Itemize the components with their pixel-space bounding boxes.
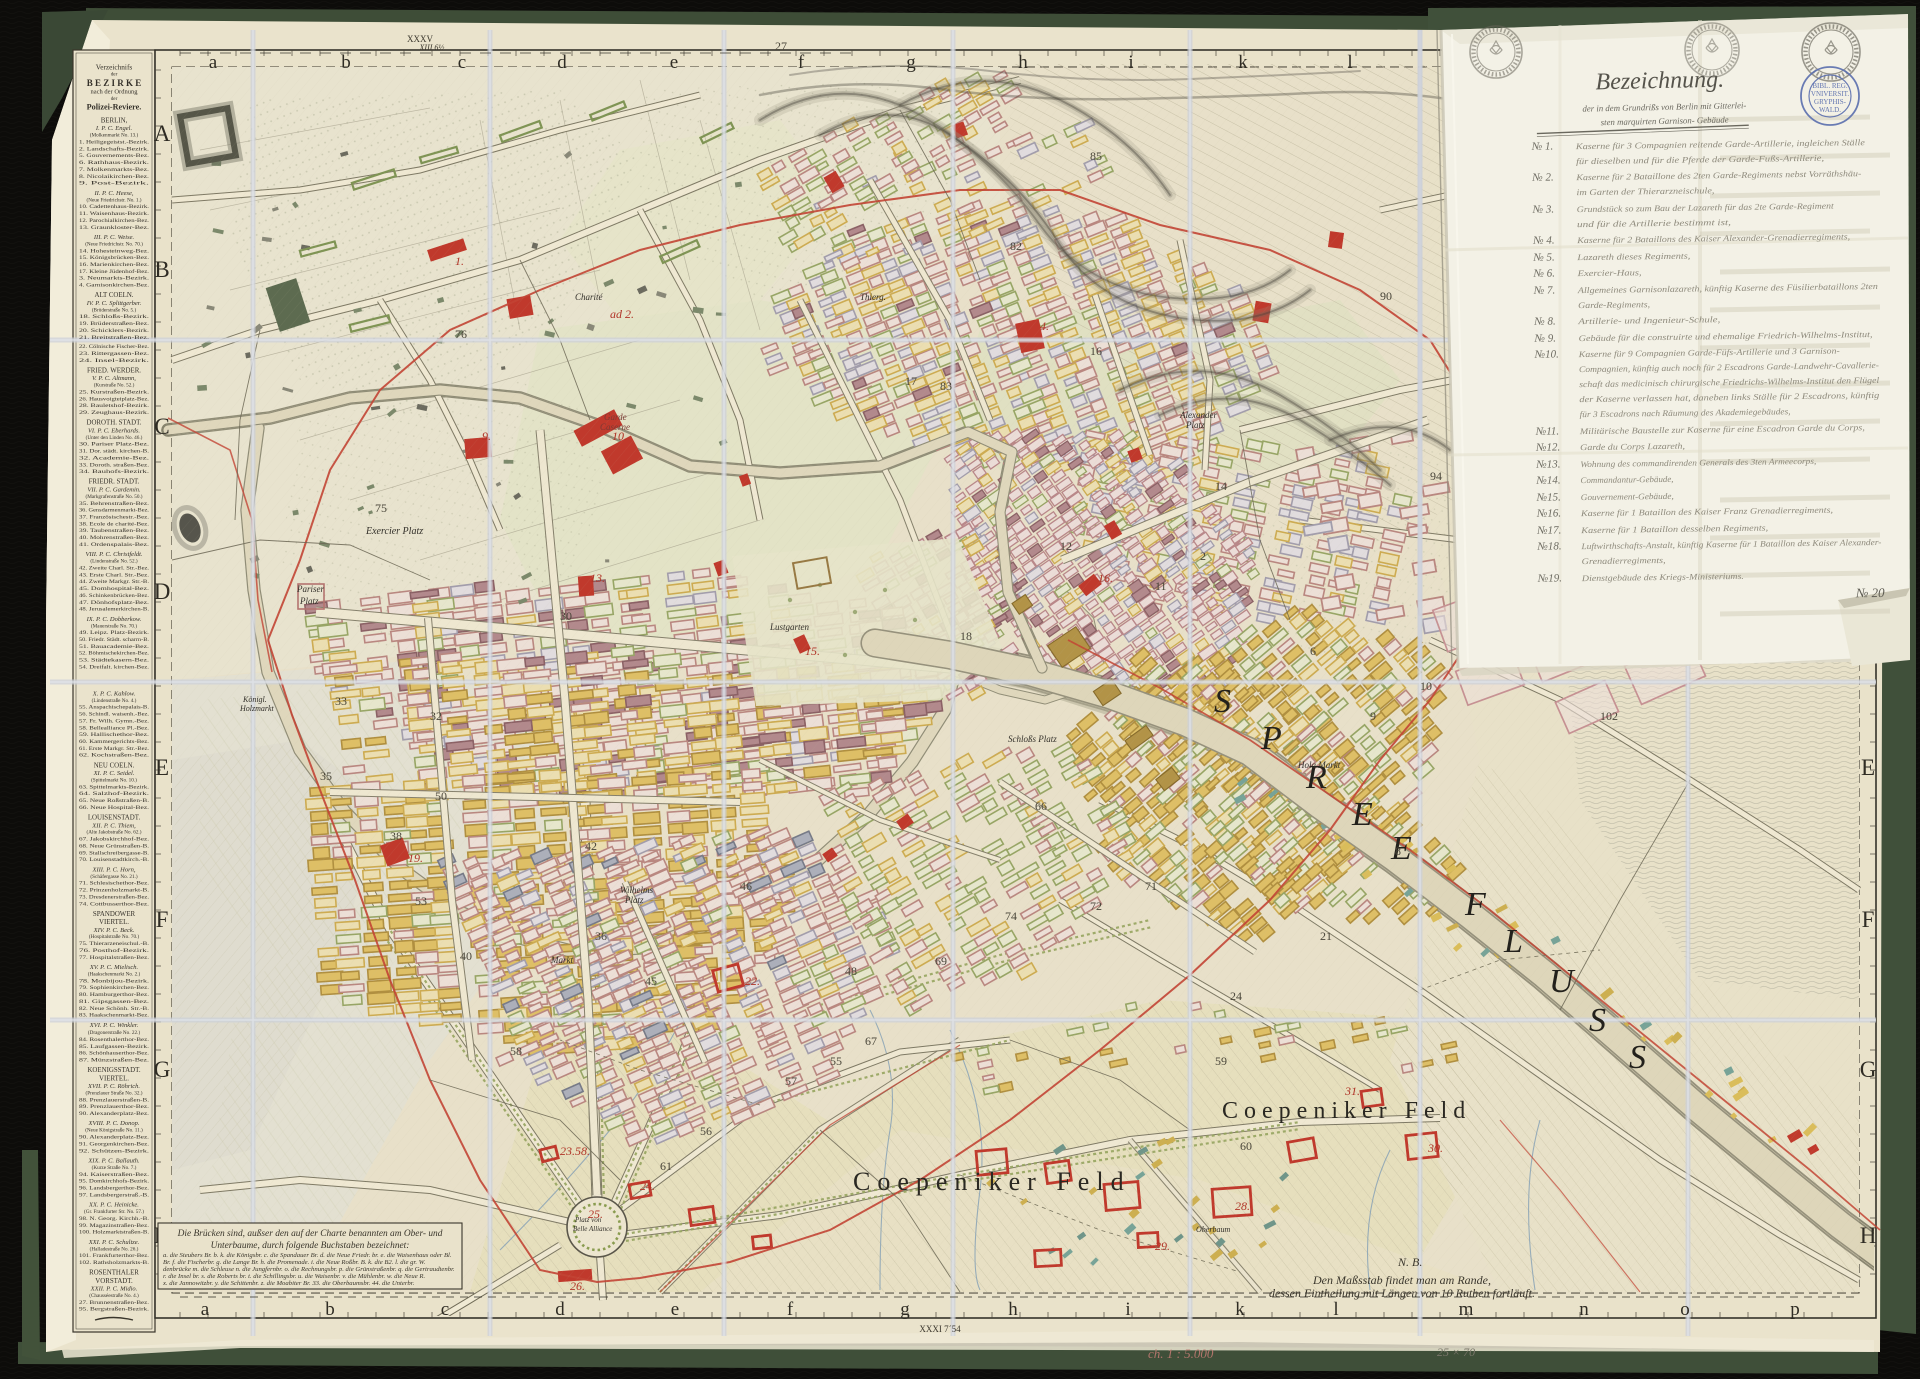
svg-text:90: 90	[1380, 289, 1392, 303]
svg-text:(Neue Friedrichstr. No. 70.): (Neue Friedrichstr. No. 70.)	[85, 240, 143, 247]
svg-text:36. Gensdarmenmarkt-Bez.: 36. Gensdarmenmarkt-Bez.	[79, 508, 150, 514]
svg-text:der: der	[111, 96, 118, 102]
svg-text:p: p	[1790, 1299, 1800, 1320]
svg-text:(Schäfergasse No. 21.): (Schäfergasse No. 21.)	[90, 873, 137, 880]
svg-text:a: a	[209, 52, 218, 73]
svg-text:(Markgrafenstraße No. 50.): (Markgrafenstraße No. 50.)	[85, 493, 142, 500]
svg-text:90. Alexanderplatz-Bez.: 90. Alexanderplatz-Bez.	[79, 1111, 150, 1117]
svg-text:81. Gipsgassen-Bez.: 81. Gipsgassen-Bez.	[79, 999, 150, 1005]
svg-text:60. Kammergerichts-Bez.: 60. Kammergerichts-Bez.	[79, 739, 150, 745]
svg-text:(Neue Königstraße No. 11.): (Neue Königstraße No. 11.)	[85, 1127, 143, 1134]
svg-text:16.: 16.	[1098, 571, 1113, 585]
svg-text:BERLIN,: BERLIN,	[101, 118, 128, 125]
svg-text:99. Magazinstraßen-Bez.: 99. Magazinstraßen-Bez.	[79, 1222, 150, 1229]
svg-text:84. Rosenthalerthor-Bez.: 84. Rosenthalerthor-Bez.	[79, 1037, 150, 1043]
svg-text:№14.: №14.	[1535, 474, 1560, 486]
svg-text:III. P. C. Weise.: III. P. C. Weise.	[93, 234, 135, 241]
svg-text:Platz: Platz	[1185, 420, 1205, 430]
svg-text:25 × 70: 25 × 70	[1437, 1345, 1475, 1359]
svg-text:85. Laufgassen-Bezirk.: 85. Laufgassen-Bezirk.	[79, 1043, 150, 1050]
svg-text:102. Rathsholzmarkts-B.: 102. Rathsholzmarkts-B.	[79, 1260, 150, 1266]
svg-text:XIII 6½: XIII 6½	[419, 43, 445, 52]
svg-text:(Kurze Straße No. 7.): (Kurze Straße No. 7.)	[92, 1164, 137, 1171]
svg-text:G: G	[154, 1057, 171, 1082]
svg-text:68. Neue Grünstraßen-B.: 68. Neue Grünstraßen-B.	[79, 843, 150, 850]
svg-text:(Unter den Linden No. 46.): (Unter den Linden No. 46.)	[86, 434, 143, 441]
svg-text:11. Waisenhaus-Bezirk.: 11. Waisenhaus-Bezirk.	[79, 211, 150, 217]
svg-text:21: 21	[1320, 929, 1332, 943]
svg-text:64. Salzhof-Bezirk.: 64. Salzhof-Bezirk.	[79, 790, 150, 797]
svg-text:Lustgarten: Lustgarten	[769, 622, 810, 632]
svg-text:IX. P. C. Dobberkow.: IX. P. C. Dobberkow.	[86, 616, 142, 623]
svg-text:2. Landschafts-Bezirk.: 2. Landschafts-Bezirk.	[79, 145, 150, 152]
svg-text:9.: 9.	[482, 429, 491, 443]
svg-text:№ 4.: № 4.	[1532, 234, 1555, 246]
svg-text:XXXI 7´54: XXXI 7´54	[919, 1324, 961, 1334]
svg-text:70. Louisenstadtkirch.-B.: 70. Louisenstadtkirch.-B.	[79, 857, 150, 863]
svg-text:55: 55	[830, 1054, 842, 1068]
svg-text:56: 56	[700, 1124, 712, 1138]
svg-text:(Neue Friedrichstr. No. 1.): (Neue Friedrichstr. No. 1.)	[86, 196, 141, 203]
svg-text:WALD.: WALD.	[1819, 106, 1841, 114]
svg-text:32: 32	[430, 709, 442, 723]
svg-text:№10.: №10.	[1534, 348, 1559, 360]
svg-text:XIV. P. C. Beck.: XIV. P. C. Beck.	[93, 927, 135, 934]
svg-text:35: 35	[320, 769, 332, 783]
svg-text:XIX. P. C. Ballauth.: XIX. P. C. Ballauth.	[87, 1158, 140, 1165]
svg-text:55. Anspachischepalais-B.: 55. Anspachischepalais-B.	[79, 705, 150, 711]
svg-text:№16.: №16.	[1536, 507, 1561, 519]
svg-text:10. Cadettenhaus-Bezirk.: 10. Cadettenhaus-Bezirk.	[79, 204, 150, 210]
svg-text:№ 8.: № 8.	[1533, 315, 1556, 327]
svg-text:c: c	[441, 1299, 449, 1320]
svg-text:№19.: №19.	[1537, 572, 1562, 584]
svg-text:Verzeichnifs: Verzeichnifs	[96, 62, 133, 71]
svg-text:45. Domhospital-Bez.: 45. Domhospital-Bez.	[79, 586, 150, 592]
svg-text:Grenadierregiments,: Grenadierregiments,	[1582, 555, 1666, 566]
svg-text:d: d	[555, 1299, 565, 1320]
svg-text:i: i	[1128, 52, 1133, 73]
svg-text:67. Jakobskirchhof-Bez.: 67. Jakobskirchhof-Bez.	[79, 836, 150, 843]
svg-text:43. Erste Charl. Str.-Bez.: 43. Erste Charl. Str.-Bez.	[79, 572, 150, 578]
svg-text:18: 18	[960, 629, 972, 643]
svg-text:Unterbaume, durch folgende Buc: Unterbaume, durch folgende Buchstaben be…	[211, 1240, 410, 1251]
svg-text:91. Georgenkirchen-Bez.: 91. Georgenkirchen-Bez.	[79, 1141, 150, 1147]
svg-text:Thierg.: Thierg.	[860, 292, 886, 302]
svg-text:6: 6	[1310, 644, 1316, 658]
svg-text:21. Breitstraßen-Bez.: 21. Breitstraßen-Bez.	[79, 334, 150, 341]
svg-text:36: 36	[595, 929, 607, 943]
svg-text:14. Hohesteinweg-Bez.: 14. Hohesteinweg-Bez.	[79, 248, 150, 254]
svg-text:7. Molkenmarkts-Bez.: 7. Molkenmarkts-Bez.	[79, 167, 150, 173]
svg-text:24.: 24.	[640, 1179, 655, 1193]
svg-text:XVIII. P. C. Donop.: XVIII. P. C. Donop.	[88, 1120, 140, 1127]
svg-text:(Spittelmarkt No. 10.): (Spittelmarkt No. 10.)	[91, 777, 137, 784]
svg-text:62. Kochstraßen-Bez.: 62. Kochstraßen-Bez.	[79, 752, 150, 759]
svg-text:(Chausséestraße No. 4.): (Chausséestraße No. 4.)	[89, 1292, 139, 1299]
svg-text:79. Sophienkirchen-Bez.: 79. Sophienkirchen-Bez.	[79, 985, 150, 991]
svg-text:50. Friedr. Städt. scharrn-B.: 50. Friedr. Städt. scharrn-B.	[79, 637, 150, 643]
svg-text:S: S	[1214, 683, 1231, 720]
svg-text:L: L	[1503, 923, 1523, 960]
svg-text:№ 5.: № 5.	[1532, 251, 1555, 263]
svg-text:b: b	[325, 1299, 335, 1320]
svg-text:(Hospitalstraße No. 70.): (Hospitalstraße No. 70.)	[89, 933, 139, 940]
svg-text:G: G	[1860, 1057, 1877, 1082]
svg-text:Garde: Garde	[604, 412, 627, 422]
svg-text:27. Brunnenstraßen-Bez.: 27. Brunnenstraßen-Bez.	[79, 1299, 150, 1306]
svg-text:1.: 1.	[455, 254, 464, 268]
svg-text:90. Alexanderplatz-Bez.: 90. Alexanderplatz-Bez.	[79, 1135, 150, 1141]
svg-text:4. Garnisonkirchen-Bez.: 4. Garnisonkirchen-Bez.	[79, 283, 150, 289]
svg-text:77. Hospitalstraßen-Bez.: 77. Hospitalstraßen-Bez.	[79, 954, 150, 961]
svg-text:30.: 30.	[1427, 1141, 1443, 1155]
svg-text:17: 17	[905, 374, 917, 388]
svg-text:der: der	[111, 72, 118, 78]
svg-text:14: 14	[1215, 479, 1227, 493]
svg-text:VI. P. C. Eberhards.: VI. P. C. Eberhards.	[88, 427, 140, 434]
svg-text:25. Kurstraßen-Bezirk.: 25. Kurstraßen-Bezirk.	[79, 389, 150, 396]
svg-text:97. Landsbergerstraß.-B.: 97. Landsbergerstraß.-B.	[79, 1191, 150, 1198]
svg-text:№ 9.: № 9.	[1533, 332, 1556, 344]
svg-text:XXI. P. C. Schultze.: XXI. P. C. Schultze.	[88, 1239, 140, 1246]
svg-text:KOENIGSSTADT.: KOENIGSSTADT.	[87, 1067, 140, 1074]
svg-text:10: 10	[1420, 679, 1432, 693]
svg-text:(Lindenstraße No. 52.): (Lindenstraße No. 52.)	[90, 558, 138, 565]
svg-text:f: f	[798, 52, 805, 73]
svg-text:GRYPHIS-: GRYPHIS-	[1814, 98, 1847, 106]
svg-text:XV. P. C. Mielisch.: XV. P. C. Mielisch.	[89, 964, 139, 971]
svg-text:S: S	[1589, 1002, 1606, 1039]
svg-text:XVII. P. C. Röhrich.: XVII. P. C. Röhrich.	[87, 1083, 140, 1090]
svg-text:50: 50	[435, 789, 447, 803]
svg-text:l: l	[1333, 1299, 1338, 1320]
svg-text:88. Prenzlauerstraßen-B.: 88. Prenzlauerstraßen-B.	[79, 1096, 150, 1103]
svg-text:№ 1.: № 1.	[1531, 140, 1554, 152]
svg-text:l: l	[1347, 52, 1352, 73]
svg-text:95. Domkirchhofs-Bezirk.: 95. Domkirchhofs-Bezirk.	[79, 1178, 150, 1185]
svg-text:71. Schlesischethor-Bez.: 71. Schlesischethor-Bez.	[79, 881, 150, 887]
svg-text:33. Doroth. straßen-Bez.: 33. Doroth. straßen-Bez.	[79, 461, 150, 468]
svg-text:XII. P. C. Thiem,: XII. P. C. Thiem,	[91, 822, 136, 829]
svg-text:(Halladestraße No. 26.): (Halladestraße No. 26.)	[90, 1245, 139, 1252]
svg-text:II. P. C. Heese,: II. P. C. Heese,	[93, 190, 133, 197]
svg-text:17. Kleine Jüdenhof-Bez.: 17. Kleine Jüdenhof-Bez.	[79, 268, 150, 275]
svg-text:Lazareth dieses Regiments,: Lazareth dieses Regiments,	[1576, 251, 1690, 263]
svg-text:54. Dreifalt. kirchen-Bez.: 54. Dreifalt. kirchen-Bez.	[79, 663, 150, 670]
svg-text:Oberbaum: Oberbaum	[1196, 1225, 1230, 1234]
svg-text:57. Fr. Wilh. Gymn.-Bez.: 57. Fr. Wilh. Gymn.-Bez.	[79, 718, 150, 724]
svg-text:o: o	[1680, 1299, 1690, 1320]
svg-text:m: m	[1459, 1299, 1474, 1320]
svg-text:42: 42	[585, 839, 597, 853]
svg-text:Artillerie- und Ingenieur-Schu: Artillerie- und Ingenieur-Schule,	[1577, 314, 1720, 326]
svg-text:9. Post-Bezirk.: 9. Post-Bezirk.	[79, 181, 150, 187]
svg-text:24: 24	[1230, 989, 1242, 1003]
svg-text:(Molkenmarkt No. 13.): (Molkenmarkt No. 13.)	[90, 132, 139, 139]
svg-text:№18.: №18.	[1536, 540, 1561, 552]
svg-text:10.: 10.	[612, 429, 627, 443]
svg-text:ROSENTHALER: ROSENTHALER	[89, 1270, 139, 1277]
svg-text:37. Französischestr.-Bez.: 37. Französischestr.-Bez.	[79, 515, 150, 521]
svg-text:30: 30	[560, 609, 572, 623]
svg-text:94. Kaiserstraßen-Bez.: 94. Kaiserstraßen-Bez.	[79, 1171, 150, 1178]
svg-text:22.: 22.	[745, 974, 760, 988]
svg-text:60: 60	[1240, 1139, 1252, 1153]
svg-text:NEU COELN.: NEU COELN.	[94, 762, 135, 769]
svg-text:IV. P. C. Splittgerber.: IV. P. C. Splittgerber.	[86, 300, 142, 307]
svg-text:87. Münzstraßen-Bez.: 87. Münzstraßen-Bez.	[79, 1057, 150, 1064]
svg-text:g: g	[906, 52, 916, 73]
svg-text:30. Pariser Platz-Bez.: 30. Pariser Platz-Bez.	[79, 442, 150, 448]
svg-text:45: 45	[645, 974, 657, 988]
svg-text:VIERTEL.: VIERTEL.	[99, 1075, 129, 1082]
svg-text:Garde du Corps Lazareth,: Garde du Corps Lazareth,	[1580, 441, 1685, 452]
svg-text:(Lindenstraße No. 4.): (Lindenstraße No. 4.)	[92, 697, 137, 704]
svg-text:№12.: №12.	[1535, 441, 1560, 453]
svg-text:48: 48	[845, 964, 857, 978]
svg-text:dessen Eintheilung mit Längen: dessen Eintheilung mit Längen von 10 Rut…	[1269, 1286, 1535, 1300]
svg-text:f: f	[787, 1299, 794, 1320]
svg-text:101. Frankfurterthor-Bez.: 101. Frankfurterthor-Bez.	[79, 1252, 150, 1259]
svg-text:XIII. P. C. Horn,: XIII. P. C. Horn,	[91, 866, 135, 873]
svg-text:51. Bauacademie-Bez.: 51. Bauacademie-Bez.	[79, 644, 150, 650]
svg-text:25.: 25.	[588, 1207, 603, 1221]
svg-text:d: d	[557, 52, 567, 73]
svg-text:40. Mohrenstraßen-Bez.: 40. Mohrenstraßen-Bez.	[79, 534, 150, 541]
svg-text:61: 61	[660, 1159, 672, 1173]
svg-text:Markt: Markt	[550, 955, 573, 965]
svg-text:(Brüderstraße No. 5.): (Brüderstraße No. 5.)	[92, 306, 137, 313]
svg-text:76. Posthof-Bezirk.: 76. Posthof-Bezirk.	[79, 947, 150, 954]
svg-text:Commandantur-Gebäude,: Commandantur-Gebäude,	[1580, 474, 1673, 485]
svg-text:k: k	[1235, 1299, 1245, 1320]
svg-text:69. Stallschreibergasse-B.: 69. Stallschreibergasse-B.	[79, 850, 150, 856]
svg-text:a: a	[201, 1299, 210, 1320]
svg-text:32. Academie-Bez.: 32. Academie-Bez.	[79, 455, 150, 461]
svg-text:SPANDOWER: SPANDOWER	[93, 911, 136, 918]
svg-text:h: h	[1018, 52, 1028, 73]
svg-text:28. Bauletshof-Bezirk.: 28. Bauletshof-Bezirk.	[79, 402, 150, 409]
svg-text:102: 102	[1600, 709, 1618, 723]
svg-text:XI. P. C. Seidel.: XI. P. C. Seidel.	[93, 770, 135, 777]
svg-text:46: 46	[740, 879, 752, 893]
svg-text:P: P	[1260, 720, 1282, 757]
svg-text:Den Maßsstab findet man am Ran: Den Maßsstab findet man am Rande,	[1312, 1273, 1491, 1287]
svg-text:D: D	[154, 579, 171, 604]
svg-text:Belle Alliance: Belle Alliance	[573, 1225, 612, 1233]
svg-text:27: 27	[775, 39, 787, 53]
svg-text:89. Prenzlauerthor-Bez.: 89. Prenzlauerthor-Bez.	[79, 1104, 150, 1110]
svg-text:23. Rittergassen-Bez.: 23. Rittergassen-Bez.	[79, 351, 150, 357]
svg-text:4.: 4.	[1040, 319, 1049, 333]
svg-text:73. Dresdenerstraßen-Bez.: 73. Dresdenerstraßen-Bez.	[79, 893, 150, 900]
svg-text:E: E	[155, 755, 169, 780]
svg-text:13.: 13.	[590, 571, 605, 585]
svg-text:38. Ecole de charité-Bez.: 38. Ecole de charité-Bez.	[79, 521, 150, 527]
svg-text:2: 2	[1200, 549, 1206, 563]
svg-text:g: g	[900, 1299, 910, 1320]
svg-text:Polizei-Reviere.: Polizei-Reviere.	[87, 103, 142, 112]
svg-text:B: B	[154, 257, 169, 282]
svg-text:6. Rathhaus-Bezirk.: 6. Rathhaus-Bezirk.	[79, 160, 150, 166]
svg-text:38: 38	[390, 829, 402, 843]
svg-text:Die Brücken sind, außser den a: Die Brücken sind, außser den auf der Cha…	[177, 1228, 443, 1239]
svg-text:9: 9	[1370, 709, 1376, 723]
svg-text:k: k	[1238, 52, 1248, 73]
svg-text:XVI. P. C. Winkler.: XVI. P. C. Winkler.	[89, 1022, 139, 1029]
svg-text:№15.: №15.	[1536, 491, 1561, 503]
svg-text:58. Bellealliance Pl.-Bez.: 58. Bellealliance Pl.-Bez.	[79, 725, 150, 731]
svg-text:DOROTH. STADT.: DOROTH. STADT.	[86, 420, 141, 427]
svg-text:15. Königsbrücken-Bez.: 15. Königsbrücken-Bez.	[79, 255, 150, 261]
svg-text:FRIED. WERDER.: FRIED. WERDER.	[87, 367, 141, 374]
svg-text:72: 72	[1090, 899, 1102, 913]
svg-text:72. Prinzenholzmarkt-B.: 72. Prinzenholzmarkt-B.	[79, 888, 150, 894]
svg-text:F: F	[1862, 907, 1875, 932]
svg-text:59: 59	[1215, 1054, 1227, 1068]
svg-text:№ 3.: № 3.	[1532, 203, 1555, 215]
svg-text:Pariser: Pariser	[296, 584, 324, 594]
svg-text:XXII. P. C. Midio.: XXII. P. C. Midio.	[90, 1286, 138, 1293]
svg-text:A: A	[154, 121, 171, 146]
svg-text:83: 83	[940, 379, 952, 393]
svg-text:100. Holzmarktstraßen-B.: 100. Holzmarktstraßen-B.	[79, 1229, 150, 1236]
svg-text:E: E	[1351, 796, 1373, 833]
svg-text:r. die Insel br. s. die Robert: r. die Insel br. s. die Roberts br. t. d…	[163, 1273, 425, 1280]
svg-text:40: 40	[460, 949, 472, 963]
svg-text:VIERTEL.: VIERTEL.	[99, 919, 129, 926]
svg-text:24. Insel-Bezirk.: 24. Insel-Bezirk.	[79, 358, 150, 364]
svg-text:22. Cölnische Fischer-Bez.: 22. Cölnische Fischer-Bez.	[79, 344, 150, 350]
svg-text:(Gr. Frankfurter Str. No. 57.): (Gr. Frankfurter Str. No. 57.)	[84, 1208, 144, 1215]
svg-text:Garde-Regiments,: Garde-Regiments,	[1578, 299, 1650, 310]
svg-text:29.: 29.	[1155, 1239, 1170, 1253]
svg-text:82: 82	[1010, 239, 1022, 253]
svg-text:Coepeniker Feld: Coepeniker Feld	[1222, 1098, 1471, 1124]
svg-text:H: H	[1860, 1223, 1877, 1248]
svg-text:96. Landsbergerthor-Bez.: 96. Landsbergerthor-Bez.	[79, 1186, 150, 1192]
svg-text:C: C	[154, 414, 169, 439]
svg-text:(Kurstraße No. 52.): (Kurstraße No. 52.)	[94, 382, 135, 389]
svg-text:b: b	[341, 52, 351, 73]
svg-text:41. Ordenspalais-Bez.: 41. Ordenspalais-Bez.	[79, 542, 150, 548]
svg-text:E: E	[1390, 830, 1412, 867]
svg-text:63. Spittelmarkts-Bezirk.: 63. Spittelmarkts-Bezirk.	[79, 784, 150, 790]
svg-text:Charité: Charité	[575, 292, 604, 302]
svg-text:75: 75	[375, 501, 387, 515]
svg-text:56. Schindl. waisenh.-Bez.: 56. Schindl. waisenh.-Bez.	[79, 712, 150, 718]
svg-text:44. Zweite Markgr. Str.-B.: 44. Zweite Markgr. Str.-B.	[79, 579, 150, 585]
svg-text:31.: 31.	[1344, 1084, 1360, 1098]
svg-text:12: 12	[1060, 539, 1072, 553]
svg-text:92. Schützen-Bezirk.: 92. Schützen-Bezirk.	[79, 1148, 150, 1154]
svg-text:11: 11	[1155, 579, 1167, 593]
svg-text:66: 66	[1035, 799, 1047, 813]
svg-text:Hola Markt: Hola Markt	[1297, 760, 1341, 770]
svg-text:29. Zeughaus-Bezirk.: 29. Zeughaus-Bezirk.	[79, 410, 150, 416]
svg-text:Exercier Platz: Exercier Platz	[365, 526, 423, 537]
svg-text:Wilhelms: Wilhelms	[620, 885, 653, 895]
svg-text:c: c	[458, 52, 466, 73]
svg-text:x. die Jannowitzbr. y. die Sch: x. die Jannowitzbr. y. die Schittenbr. z…	[162, 1280, 415, 1287]
svg-text:E: E	[1861, 755, 1875, 780]
svg-text:F: F	[156, 907, 169, 932]
svg-text:26.: 26.	[570, 1279, 585, 1293]
svg-text:VORSTADT.: VORSTADT.	[95, 1278, 133, 1285]
svg-text:15.: 15.	[805, 644, 820, 658]
svg-text:33: 33	[335, 694, 347, 708]
svg-text:VNIVERSIT.: VNIVERSIT.	[1811, 90, 1849, 98]
svg-text:13. Graunkloster-Bez.: 13. Graunkloster-Bez.	[79, 225, 150, 231]
svg-text:U: U	[1549, 963, 1576, 1000]
svg-text:82. Neue Schönh. Str.-B.: 82. Neue Schönh. Str.-B.	[79, 1006, 150, 1012]
svg-text:VIII. P. C. Christfeldt.: VIII. P. C. Christfeldt.	[85, 551, 142, 558]
svg-text:76: 76	[455, 327, 467, 341]
svg-text:nach der Ordnung: nach der Ordnung	[91, 89, 139, 96]
svg-text:ch. 1 : 5.000: ch. 1 : 5.000	[1148, 1346, 1214, 1361]
svg-text:Platz: Platz	[624, 895, 644, 905]
svg-text:BIBL. REG.: BIBL. REG.	[1812, 82, 1847, 90]
svg-text:№13.: №13.	[1535, 458, 1560, 470]
svg-text:23.58.: 23.58.	[560, 1144, 590, 1158]
svg-text:80. Hamburgerthor-Bez.: 80. Hamburgerthor-Bez.	[79, 992, 150, 998]
svg-text:ad 2.: ad 2.	[610, 307, 634, 321]
svg-text:31. Dor. städt. kirchen-B.: 31. Dor. städt. kirchen-B.	[79, 449, 150, 455]
svg-text:16: 16	[1090, 344, 1102, 358]
svg-text:№17.: №17.	[1536, 524, 1561, 536]
svg-text:20. Schicklers-Bezirk.: 20. Schicklers-Bezirk.	[79, 328, 150, 334]
svg-text:48. Jerusalemerkirchen-B.: 48. Jerusalemerkirchen-B.	[79, 607, 150, 613]
svg-text:74: 74	[1005, 909, 1017, 923]
svg-text:LOUISENSTADT.: LOUISENSTADT.	[88, 815, 141, 822]
svg-text:(Haakschenmarkt No. 2.): (Haakschenmarkt No. 2.)	[88, 970, 141, 977]
svg-text:19. Brüderstraßen-Bez.: 19. Brüderstraßen-Bez.	[79, 320, 150, 327]
svg-text:26. Hausvoigteiplatz-Bez.: 26. Hausvoigteiplatz-Bez.	[79, 396, 150, 402]
svg-text:12. Parochialkirchen-Bez.: 12. Parochialkirchen-Bez.	[79, 218, 150, 224]
svg-text:VII. P. C. Gardemin.: VII. P. C. Gardemin.	[87, 487, 141, 494]
svg-text:18. Schloßs-Bezirk.: 18. Schloßs-Bezirk.	[79, 313, 150, 320]
svg-text:№ 2.: № 2.	[1531, 171, 1554, 183]
svg-text:95. Bergstraßen-Bezirk.: 95. Bergstraßen-Bezirk.	[79, 1306, 150, 1313]
svg-text:V. P. C. Altmann,: V. P. C. Altmann,	[92, 375, 136, 382]
svg-text:39. Taubenstraßen-Bez.: 39. Taubenstraßen-Bez.	[79, 527, 150, 534]
svg-text:i: i	[1125, 1299, 1130, 1320]
svg-text:Königl.: Königl.	[242, 695, 267, 704]
svg-text:1. Heiligegeistst.-Bezirk.: 1. Heiligegeistst.-Bezirk.	[79, 140, 150, 146]
svg-text:65. Neue Roßstraßen-B.: 65. Neue Roßstraßen-B.	[79, 797, 150, 804]
svg-text:(Dragonerstraße No. 22.): (Dragonerstraße No. 22.)	[88, 1029, 140, 1036]
svg-text:53. Städtekasern-Bez.: 53. Städtekasern-Bez.	[79, 658, 150, 664]
svg-text:X. P. C. Kahlow.: X. P. C. Kahlow.	[92, 690, 136, 697]
svg-text:Holzmarkt: Holzmarkt	[239, 704, 275, 713]
svg-text:57: 57	[785, 1074, 797, 1088]
svg-text:16. Marienkirchen-Bez.: 16. Marienkirchen-Bez.	[79, 262, 150, 268]
svg-text:28.: 28.	[1235, 1199, 1250, 1213]
svg-text:I. P. C. Engel.: I. P. C. Engel.	[95, 125, 133, 132]
svg-text:F: F	[1464, 886, 1487, 923]
svg-text:61. Erste Markgr. Str.-Bez.: 61. Erste Markgr. Str.-Bez.	[79, 746, 150, 752]
svg-text:71: 71	[1145, 879, 1157, 893]
svg-text:46. Schinkenbrücken-Bez.: 46. Schinkenbrücken-Bez.	[79, 593, 150, 599]
svg-text:n: n	[1579, 1299, 1589, 1320]
svg-text:Alexander: Alexander	[1179, 410, 1217, 420]
svg-text:№ 7.: № 7.	[1533, 284, 1556, 296]
svg-text:85: 85	[1090, 149, 1102, 163]
svg-text:e: e	[671, 1299, 679, 1320]
svg-text:S: S	[1629, 1039, 1646, 1076]
svg-text:№ 6.: № 6.	[1533, 267, 1556, 279]
